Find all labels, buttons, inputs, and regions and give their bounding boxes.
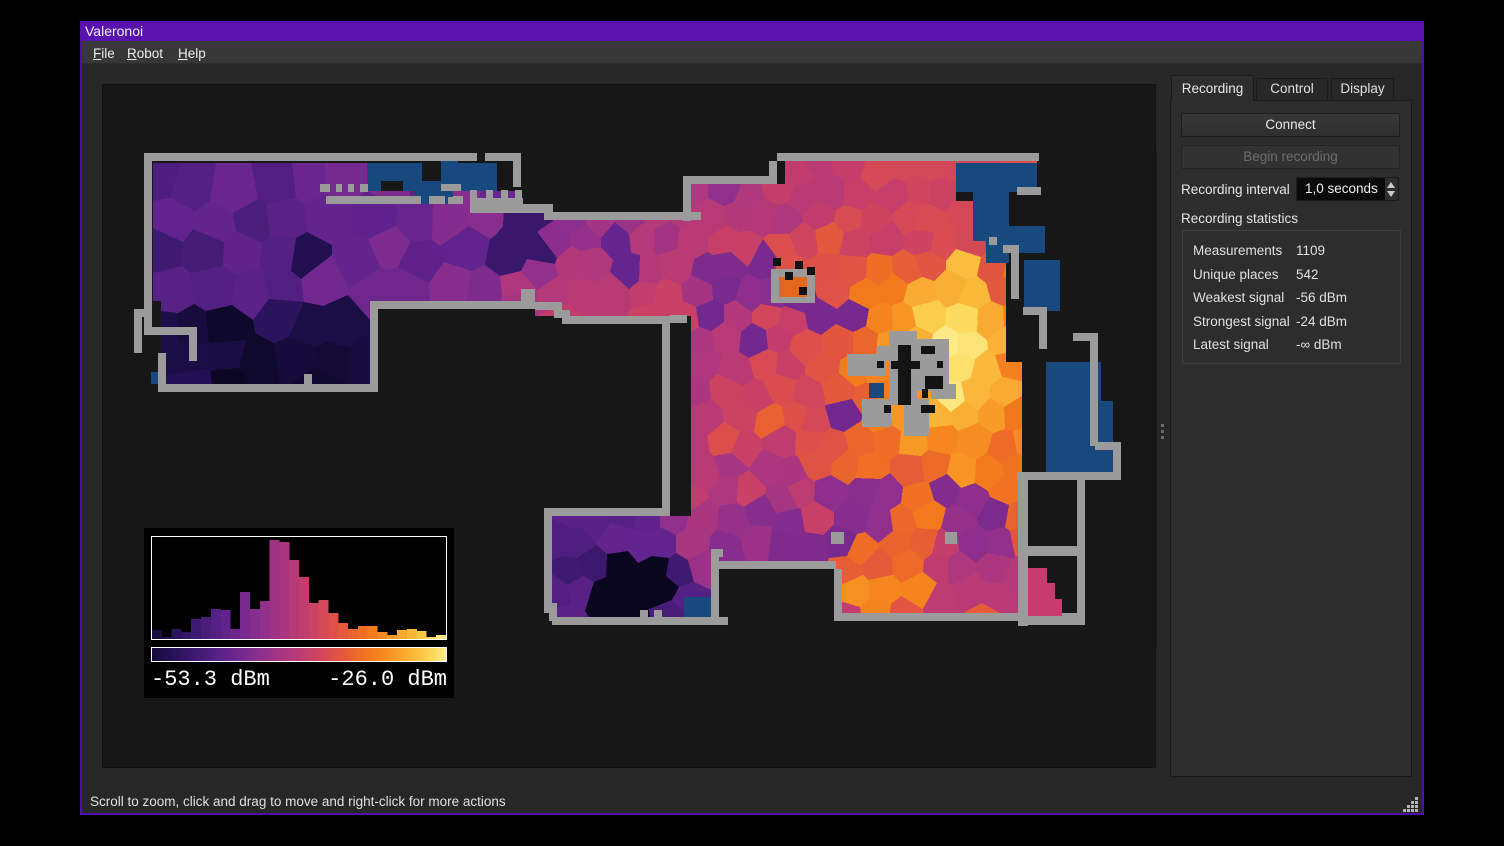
svg-text:-26.0 dBm: -26.0 dBm [328, 667, 447, 692]
svg-text:-53.3 dBm: -53.3 dBm [151, 667, 270, 692]
